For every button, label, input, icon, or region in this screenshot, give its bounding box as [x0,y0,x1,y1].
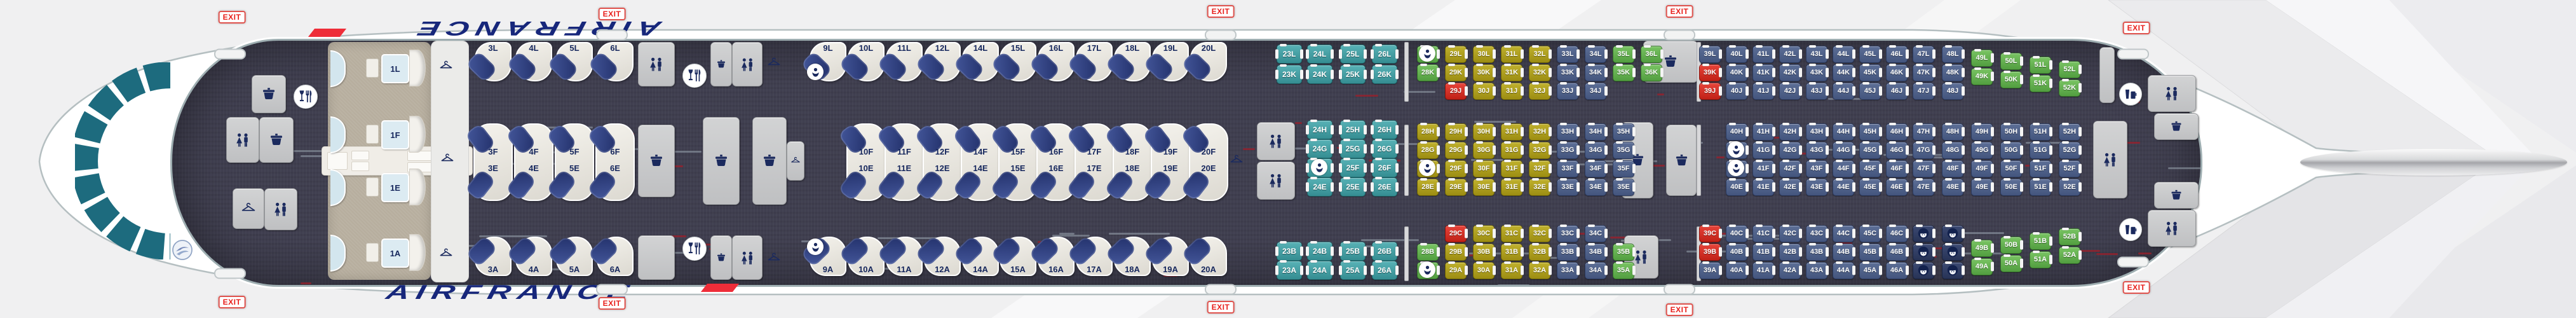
seat-30J[interactable]: 30J [1473,83,1495,100]
seat-43G[interactable]: 43G [1806,142,1827,159]
seat-49K[interactable]: 49K [1971,68,1993,85]
seat-15L[interactable]: 15L [1000,42,1036,81]
seat-52B[interactable]: 52B [2059,228,2080,245]
seat-label: 40J [1731,88,1742,95]
seat-label: 29L [1450,51,1462,58]
seat-44C[interactable]: 44C [1833,225,1854,242]
seat-32H[interactable]: 32H [1529,123,1550,141]
seat-50E[interactable]: 50E [2000,179,2022,196]
seat-51L[interactable]: 51L [2030,57,2051,74]
seat-30H[interactable]: 30H [1473,123,1495,141]
seat-label: 30J [1478,88,1489,95]
seat-6L[interactable]: 6L [597,42,634,81]
seat-5L[interactable]: 5L [556,42,593,81]
seat-39J[interactable]: 39J [1699,83,1721,100]
seat-33H[interactable]: 33H [1557,123,1578,141]
seat-49H[interactable]: 49H [1971,123,1993,141]
galley-icon [2170,120,2183,133]
seat-24L[interactable]: 24L [1307,45,1332,64]
seat-39L[interactable]: 39L [1699,46,1721,63]
seat-11A[interactable]: 11A [886,237,923,276]
seat-47A[interactable] [1913,262,1934,279]
seat-43J[interactable]: 43J [1806,83,1827,100]
seat-48B[interactable] [1942,244,1963,261]
seat-46J[interactable]: 46J [1886,83,1908,100]
seat-label: 45H [1864,128,1876,135]
seat-43B[interactable]: 43B [1806,244,1827,261]
seat-25K[interactable]: 25K [1340,65,1366,84]
seat-20L[interactable]: 20L [1190,42,1227,81]
seat-28K[interactable]: 28K [1417,64,1439,81]
seat-34G[interactable]: 34G [1585,142,1606,159]
exit-label: EXIT [2123,22,2150,34]
seat-35H[interactable]: 35H [1613,123,1634,141]
bassinet-icon [1731,163,1742,174]
seat-34H[interactable]: 34H [1585,123,1606,141]
seat-39C[interactable]: 39C [1699,225,1721,242]
seat-33L[interactable]: 33L [1557,46,1578,63]
seat-52H[interactable]: 52H [2059,123,2080,141]
seat-29C[interactable]: 29C [1445,225,1467,242]
seat-29J[interactable]: 29J [1445,83,1467,100]
seat-42C[interactable]: 42C [1779,225,1801,242]
seat-42G[interactable]: 42G [1779,142,1801,159]
seat-47H[interactable]: 47H [1913,123,1934,141]
seat-47B[interactable] [1913,244,1934,261]
galley-icon [269,132,284,148]
wardrobe-spot [766,251,782,266]
seat-48A[interactable] [1942,262,1963,279]
seat-label: 15L [1000,44,1036,53]
seat-42H[interactable]: 42H [1779,123,1801,141]
seat-41L[interactable]: 41L [1752,46,1774,63]
seat-29H[interactable]: 29H [1445,123,1467,141]
seat-35F[interactable]: 35F [1613,160,1634,177]
seat-39K[interactable]: 39K [1699,64,1721,81]
seat-label: 50K [2005,76,2017,83]
seat-33J[interactable]: 33J [1557,83,1578,100]
seat-pair-4F-4E[interactable]: 4F4E [514,123,553,201]
seat-31H[interactable]: 31H [1501,123,1522,141]
seat-41K[interactable]: 41K [1752,64,1774,81]
seat-44K[interactable]: 44K [1833,64,1854,81]
seat-33F[interactable]: 33F [1557,160,1578,177]
seat-29B[interactable]: 29B [1445,244,1467,261]
seat-46C[interactable]: 46C [1886,225,1908,242]
lavatory-block [1257,122,1295,160]
seat-label: 33F [1562,165,1574,172]
seat-label: 33C [1561,230,1574,237]
seat-41J[interactable]: 41J [1752,83,1774,100]
seat-50F[interactable]: 50F [2000,160,2022,177]
seat-24K[interactable]: 24K [1307,65,1332,84]
seat-label: 48K [1946,69,1959,76]
seat-32B[interactable]: 32B [1529,244,1550,261]
seat-45E[interactable]: 45E [1859,179,1881,196]
seat-49G[interactable]: 49G [1971,142,1993,159]
seat-26K[interactable]: 26K [1372,65,1397,84]
seat-45G[interactable]: 45G [1859,142,1881,159]
seat-45F[interactable]: 45F [1859,160,1881,177]
seat-4A[interactable]: 4A [515,237,552,276]
seat-24H[interactable]: 24H [1307,120,1332,139]
seat-35L[interactable]: 35L [1613,46,1634,63]
seat-28E[interactable]: 28E [1417,179,1439,196]
seat-31K[interactable]: 31K [1501,64,1522,81]
seat-5A[interactable]: 5A [556,237,593,276]
seat-45L[interactable]: 45L [1859,46,1881,63]
seat-12A[interactable]: 12A [924,237,961,276]
seat-51A[interactable]: 51A [2030,251,2051,268]
seat-25G[interactable]: 25G [1340,139,1366,158]
seat-pair-3F-3E[interactable]: 3F3E [473,123,513,201]
seat-label: 30A [1477,267,1490,274]
seat-28B[interactable]: 28B [1417,244,1439,261]
seat-30A[interactable]: 30A [1473,262,1495,279]
seat-31E[interactable]: 31E [1501,179,1522,196]
seat-45A[interactable]: 45A [1859,262,1881,279]
seat-41G[interactable]: 41G [1752,142,1774,159]
seat-label: 49K [1976,73,1988,80]
seat-47C[interactable] [1913,225,1934,242]
seat-pair-5F-5E[interactable]: 5F5E [555,123,594,201]
seat-42K[interactable]: 42K [1779,64,1801,81]
seat-42J[interactable]: 42J [1779,83,1801,100]
seat-1A[interactable]: 1A [381,238,409,268]
seat-52G[interactable]: 52G [2059,142,2080,159]
seat-30K[interactable]: 30K [1473,64,1495,81]
seat-29K[interactable]: 29K [1445,64,1467,81]
seat-50L[interactable]: 50L [2000,53,2022,70]
seat-31G[interactable]: 31G [1501,142,1522,159]
seat-34F[interactable]: 34F [1585,160,1606,177]
seat-34C[interactable]: 34C [1585,225,1606,242]
seat-34E[interactable]: 34E [1585,179,1606,196]
seat-51K[interactable]: 51K [2030,75,2051,92]
seat-1F[interactable]: 1F [381,120,409,149]
seat-46L[interactable]: 46L [1886,46,1908,63]
seat-3L[interactable]: 3L [475,42,512,81]
seat-31B[interactable]: 31B [1501,244,1522,261]
seat-35G[interactable]: 35G [1613,142,1634,159]
seat-52A[interactable]: 52A [2059,247,2080,264]
seat-30B[interactable]: 30B [1473,244,1495,261]
seat-44A[interactable]: 44A [1833,262,1854,279]
seat-18L[interactable]: 18L [1114,42,1151,81]
seat-label: 6A [597,265,634,274]
seat-33G[interactable]: 33G [1557,142,1578,159]
seat-34L[interactable]: 34L [1585,46,1606,63]
seat-24G[interactable]: 24G [1307,139,1332,158]
seat-51B[interactable]: 51B [2030,233,2051,250]
seat-41B[interactable]: 41B [1752,244,1774,261]
seat-47F[interactable]: 47F [1913,160,1934,177]
seat-42E[interactable]: 42E [1779,179,1801,196]
seat-45K[interactable]: 45K [1859,64,1881,81]
seat-29F[interactable]: 29F [1445,160,1467,177]
seat-43F[interactable]: 43F [1806,160,1827,177]
seat-label: 44B [1837,249,1850,256]
seat-pair-20F-20E[interactable]: 20F20E [1189,123,1228,201]
seat-label: 32J [1534,88,1545,95]
seat-46B[interactable]: 46B [1886,244,1908,261]
seat-23K[interactable]: 23K [1277,65,1302,84]
seat-51H[interactable]: 51H [2030,123,2051,141]
seat-46H[interactable]: 46H [1886,123,1908,141]
seat-45C[interactable]: 45C [1859,225,1881,242]
seat-25B[interactable]: 25B [1340,242,1366,261]
seat-41H[interactable]: 41H [1752,123,1774,141]
seat-19A[interactable]: 19A [1152,237,1189,276]
seat-32J[interactable]: 32J [1529,83,1550,100]
seat-48E[interactable]: 48E [1942,179,1963,196]
seat-48H[interactable]: 48H [1942,123,1963,141]
seat-30L[interactable]: 30L [1473,46,1495,63]
seat-35B[interactable]: 35B [1613,244,1634,261]
seat-42B[interactable]: 42B [1779,244,1801,261]
seat-50K[interactable]: 50K [2000,71,2022,88]
seat-48F[interactable]: 48F [1942,160,1963,177]
seat-43C[interactable]: 43C [1806,225,1827,242]
seat-12L[interactable]: 12L [924,42,961,81]
seat-25A[interactable]: 25A [1340,261,1366,280]
seat-48L[interactable]: 48L [1942,46,1963,63]
seat-28H[interactable]: 28H [1417,123,1439,141]
seat-36K[interactable]: 36K [1641,64,1662,81]
seat-48K[interactable]: 48K [1942,64,1963,81]
seat-34A[interactable]: 34A [1585,262,1606,279]
seat-49E[interactable]: 49E [1971,179,1993,196]
seat-label: 45K [1864,69,1876,76]
seat-33A[interactable]: 33A [1557,262,1578,279]
seat-35K[interactable]: 35K [1613,64,1634,81]
seat-4L[interactable]: 4L [515,42,552,81]
seat-17A[interactable]: 17A [1076,237,1113,276]
seat-42F[interactable]: 42F [1779,160,1801,177]
seat-29A[interactable]: 29A [1445,262,1467,279]
seat-31F[interactable]: 31F [1501,160,1522,177]
seat-30F[interactable]: 30F [1473,160,1495,177]
seat-43A[interactable]: 43A [1806,262,1827,279]
seat-29G[interactable]: 29G [1445,142,1467,159]
seat-26E[interactable]: 26E [1372,177,1397,197]
seat-24E[interactable]: 24E [1307,177,1332,197]
seat-43K[interactable]: 43K [1806,64,1827,81]
seat-26H[interactable]: 26H [1372,120,1397,139]
seat-34B[interactable]: 34B [1585,244,1606,261]
seat-label: 43F [1811,165,1823,172]
seat-label: 12F [923,148,962,156]
seat-23L[interactable]: 23L [1277,45,1302,64]
seat-label: 32H [1533,128,1546,135]
seat-33C[interactable]: 33C [1557,225,1578,242]
seat-31C[interactable]: 31C [1501,225,1522,242]
seat-43L[interactable]: 43L [1806,46,1827,63]
seat-49A[interactable]: 49A [1971,258,1993,275]
seat-52L[interactable]: 52L [2059,61,2080,78]
seat-29E[interactable]: 29E [1445,179,1467,196]
seat-26G[interactable]: 26G [1372,139,1397,158]
seat-40C[interactable]: 40C [1726,225,1747,242]
seat-44F[interactable]: 44F [1833,160,1854,177]
seat-30G[interactable]: 30G [1473,142,1495,159]
seat-label: 23K [1282,71,1296,78]
seat-36L[interactable]: 36L [1641,46,1662,63]
seat-45B[interactable]: 45B [1859,244,1881,261]
seat-label: 43B [1810,249,1823,256]
seat-30C[interactable]: 30C [1473,225,1495,242]
seat-44H[interactable]: 44H [1833,123,1854,141]
seat-49B[interactable]: 49B [1971,240,1993,257]
seat-32A[interactable]: 32A [1529,262,1550,279]
seat-35E[interactable]: 35E [1613,179,1634,196]
seat-47J[interactable]: 47J [1913,83,1934,100]
seat-32C[interactable]: 32C [1529,225,1550,242]
seat-label: 44K [1837,69,1850,76]
seat-33B[interactable]: 33B [1557,244,1578,261]
seat-26B[interactable]: 26B [1372,242,1397,261]
seat-51F[interactable]: 51F [2030,160,2051,177]
seat-46A[interactable]: 46A [1886,262,1908,279]
seat-24A[interactable]: 24A [1307,261,1332,280]
seat-47E[interactable]: 47E [1913,179,1934,196]
seat-23B[interactable]: 23B [1277,242,1302,261]
seat-40A[interactable]: 40A [1726,262,1747,279]
seat-17L[interactable]: 17L [1076,42,1113,81]
seat-20A[interactable]: 20A [1190,237,1227,276]
seat-40H[interactable]: 40H [1726,123,1747,141]
seat-30E[interactable]: 30E [1473,179,1495,196]
seat-40J[interactable]: 40J [1726,83,1747,100]
seat-label: 41K [1757,69,1770,76]
seat-40L[interactable]: 40L [1726,46,1747,63]
seat-44B[interactable]: 44B [1833,244,1854,261]
seat-49F[interactable]: 49F [1971,160,1993,177]
seat-48J[interactable]: 48J [1942,83,1963,100]
seat-11L[interactable]: 11L [886,42,923,81]
seat-33K[interactable]: 33K [1557,64,1578,81]
seat-43H[interactable]: 43H [1806,123,1827,141]
seat-label: 44A [1837,267,1850,274]
seat-48C[interactable] [1942,225,1963,242]
seat-44E[interactable]: 44E [1833,179,1854,196]
seat-pair-6F-6E[interactable]: 6F6E [595,123,635,201]
seat-51E[interactable]: 51E [2030,179,2051,196]
seat-label: 4F [514,148,553,156]
seat-49L[interactable]: 49L [1971,50,1993,67]
seat-46K[interactable]: 46K [1886,64,1908,81]
seat-15A[interactable]: 15A [1000,237,1036,276]
seat-label: 31L [1506,51,1518,58]
seat-28G[interactable]: 28G [1417,142,1439,159]
seat-31J[interactable]: 31J [1501,83,1522,100]
seat-31L[interactable]: 31L [1501,46,1522,63]
seat-46E[interactable]: 46E [1886,179,1908,196]
seat-44L[interactable]: 44L [1833,46,1854,63]
seat-44J[interactable]: 44J [1833,83,1854,100]
seat-52K[interactable]: 52K [2059,79,2080,97]
seat-10L[interactable]: 10L [848,42,885,81]
seat-25E[interactable]: 25E [1340,177,1366,197]
seat-29L[interactable]: 29L [1445,46,1467,63]
seat-19L[interactable]: 19L [1152,42,1189,81]
seat-16A[interactable]: 16A [1038,237,1074,276]
seat-label: 52F [2064,165,2076,172]
seat-25H[interactable]: 25H [1340,120,1366,139]
seat-24B[interactable]: 24B [1307,242,1332,261]
seat-44G[interactable]: 44G [1833,142,1854,159]
seat-50H[interactable]: 50H [2000,123,2022,141]
seat-47K[interactable]: 47K [1913,64,1934,81]
lavatory-block [2148,210,2196,247]
seat-16L[interactable]: 16L [1038,42,1074,81]
seat-42L[interactable]: 42L [1779,46,1801,63]
seat-34K[interactable]: 34K [1585,64,1606,81]
seat-18A[interactable]: 18A [1114,237,1151,276]
seat-label: 46B [1890,249,1903,256]
seat-46F[interactable]: 46F [1886,160,1908,177]
seat-47L[interactable]: 47L [1913,46,1934,63]
seat-32L[interactable]: 32L [1529,46,1550,63]
seat-40E[interactable]: 40E [1726,179,1747,196]
seat-50A[interactable]: 50A [2000,255,2022,272]
seat-52F[interactable]: 52F [2059,160,2080,177]
seat-51G[interactable]: 51G [2030,142,2051,159]
seat-25L[interactable]: 25L [1340,45,1366,64]
seat-32F[interactable]: 32F [1529,160,1550,177]
seat-40B[interactable]: 40B [1726,244,1747,261]
seat-41A[interactable]: 41A [1752,262,1774,279]
seat-25F[interactable]: 25F [1340,158,1366,177]
seat-45H[interactable]: 45H [1859,123,1881,141]
seat-1E[interactable]: 1E [381,173,409,202]
seat-label: 11A [886,265,923,274]
seat-31A[interactable]: 31A [1501,262,1522,279]
seat-50G[interactable]: 50G [2000,142,2022,159]
seat-43E[interactable]: 43E [1806,179,1827,196]
wardrobe-icon [439,59,453,73]
seat-41F[interactable]: 41F [1752,160,1774,177]
seat-50B[interactable]: 50B [2000,237,2022,254]
seat-26F[interactable]: 26F [1372,158,1397,177]
seat-23A[interactable]: 23A [1277,261,1302,280]
seat-46G[interactable]: 46G [1886,142,1908,159]
seat-32G[interactable]: 32G [1529,142,1550,159]
seat-3A[interactable]: 3A [475,237,512,276]
seat-40K[interactable]: 40K [1726,64,1747,81]
seat-26L[interactable]: 26L [1372,45,1397,64]
seat-33E[interactable]: 33E [1557,179,1578,196]
seat-47G[interactable]: 47G [1913,142,1934,159]
seat-41E[interactable]: 41E [1752,179,1774,196]
seat-48G[interactable]: 48G [1942,142,1963,159]
seat-26A[interactable]: 26A [1372,261,1397,280]
seat-42A[interactable]: 42A [1779,262,1801,279]
seat-label: 26E [1378,184,1391,191]
seat-45J[interactable]: 45J [1859,83,1881,100]
seat-32E[interactable]: 32E [1529,179,1550,196]
seat-34J[interactable]: 34J [1585,83,1606,100]
seat-6A[interactable]: 6A [597,237,634,276]
seat-39A[interactable]: 39A [1699,262,1721,279]
seat-52E[interactable]: 52E [2059,179,2080,196]
seat-39B[interactable]: 39B [1699,244,1721,261]
seat-1L[interactable]: 1L [381,54,409,83]
seat-10A[interactable]: 10A [848,237,885,276]
seat-32K[interactable]: 32K [1529,64,1550,81]
seat-35A[interactable]: 35A [1613,262,1634,279]
seat-41C[interactable]: 41C [1752,225,1774,242]
